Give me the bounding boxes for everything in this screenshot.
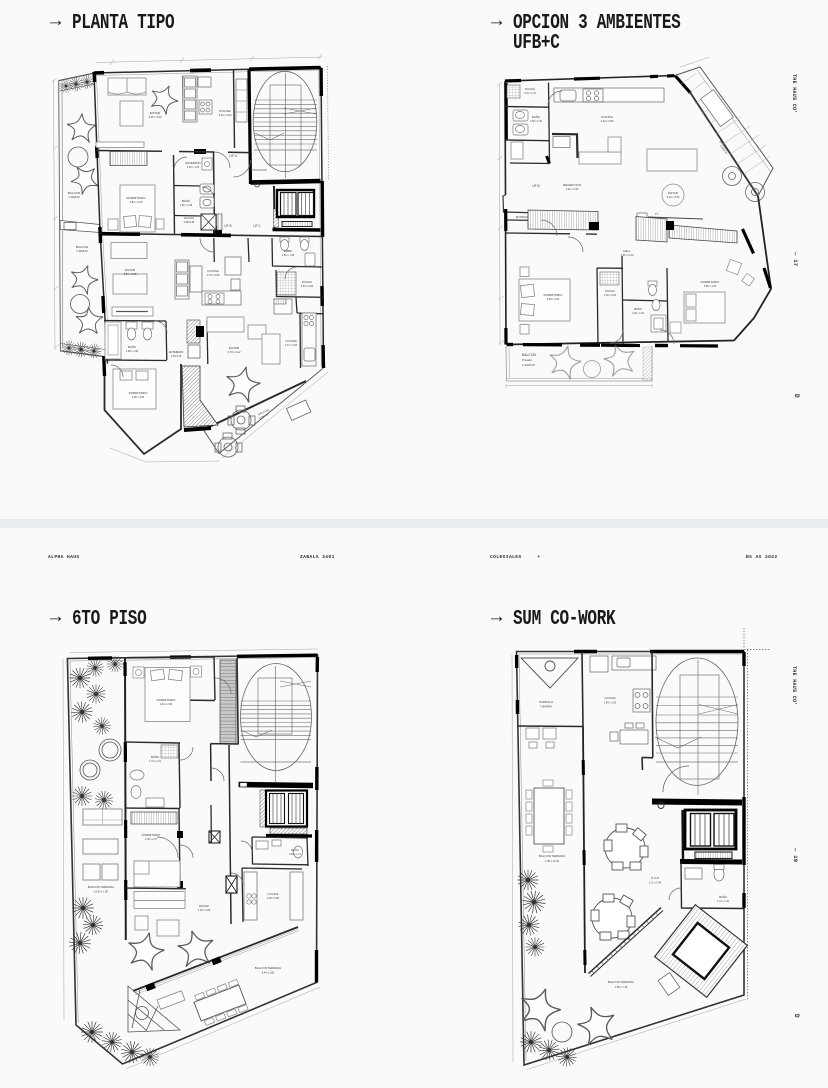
svg-text:DORMITORIO: DORMITORIO bbox=[126, 196, 146, 200]
svg-text:UF B: UF B bbox=[224, 224, 231, 228]
svg-text:1.52 x 1.45: 1.52 x 1.45 bbox=[180, 204, 193, 207]
svg-text:1.73 x 2.80: 1.73 x 2.80 bbox=[207, 273, 220, 277]
svg-text:3.35 x 3.29: 3.35 x 3.29 bbox=[704, 285, 717, 288]
svg-text:BAÑO: BAÑO bbox=[151, 754, 160, 759]
svg-text:1.52 x 1.25: 1.52 x 1.25 bbox=[187, 166, 200, 169]
svg-text:1.85 x 7.18: 1.85 x 7.18 bbox=[615, 986, 628, 989]
svg-text:COCINA: COCINA bbox=[285, 339, 296, 343]
svg-text:1.94 x 3.00: 1.94 x 3.00 bbox=[604, 702, 617, 705]
svg-text:2.05 x 2.88: 2.05 x 2.88 bbox=[267, 897, 279, 900]
svg-text:ESTAR: ESTAR bbox=[150, 111, 161, 115]
svg-text:DORMITORIO: DORMITORIO bbox=[142, 833, 161, 837]
svg-text:2.60 x 3.20: 2.60 x 3.20 bbox=[547, 298, 560, 301]
svg-text:DUCHA: DUCHA bbox=[184, 216, 194, 220]
svg-text:COCINA: COCINA bbox=[207, 269, 219, 273]
svg-text:3.08 x 3.00: 3.08 x 3.00 bbox=[132, 396, 145, 399]
svg-text:DUCHA: DUCHA bbox=[605, 289, 615, 293]
svg-text:4.29 x 3.25: 4.29 x 3.25 bbox=[198, 909, 211, 912]
svg-text:14.30 x 1.85: 14.30 x 1.85 bbox=[94, 891, 108, 894]
svg-text:2.40 x 2.93: 2.40 x 2.93 bbox=[160, 703, 173, 706]
svg-text:UF C: UF C bbox=[253, 224, 261, 228]
svg-text:1.50 x 1.45: 1.50 x 1.45 bbox=[282, 254, 295, 257]
svg-text:1.99 x 1.90: 1.99 x 1.90 bbox=[126, 350, 139, 353]
svg-text:COCINA: COCINA bbox=[601, 115, 613, 119]
svg-text:2.16 x 1.21: 2.16 x 1.21 bbox=[289, 853, 301, 856]
svg-text:ESTAR: ESTAR bbox=[229, 346, 240, 350]
svg-text:3.44 x 4.34: 3.44 x 4.34 bbox=[667, 195, 680, 199]
svg-text:BALCON TERRAZA: BALCON TERRAZA bbox=[608, 980, 634, 984]
svg-text:BALCON TERRAZA: BALCON TERRAZA bbox=[255, 966, 281, 970]
svg-text:1.60 x 1.30: 1.60 x 1.30 bbox=[530, 120, 542, 123]
svg-text:1.53 x 0.90: 1.53 x 0.90 bbox=[301, 285, 314, 288]
svg-text:BAÑO: BAÑO bbox=[532, 114, 541, 119]
svg-text:ESTAR: ESTAR bbox=[199, 904, 208, 908]
svg-text:HALL: HALL bbox=[623, 249, 631, 253]
svg-text:2.80 x 3.20: 2.80 x 3.20 bbox=[130, 200, 143, 204]
svg-text:2.45 x 3.00: 2.45 x 3.00 bbox=[149, 115, 162, 119]
svg-text:DORMITORIO: DORMITORIO bbox=[157, 698, 176, 702]
svg-text:COCINA: COCINA bbox=[219, 109, 232, 113]
svg-text:RECEPCION: RECEPCION bbox=[563, 183, 581, 187]
svg-text:0.70 x 1.70: 0.70 x 1.70 bbox=[524, 92, 536, 95]
svg-text:DUCHA: DUCHA bbox=[302, 280, 312, 284]
svg-text:1.52 x 1.30: 1.52 x 1.30 bbox=[632, 312, 644, 315]
svg-text:DORMITORIO: DORMITORIO bbox=[544, 293, 563, 297]
svg-text:Privado: Privado bbox=[522, 358, 532, 362]
svg-text:ESTAR: ESTAR bbox=[125, 268, 136, 272]
svg-text:2.71 x 5.46: 2.71 x 5.46 bbox=[649, 882, 662, 885]
svg-text:TV: TV bbox=[655, 212, 659, 216]
svg-text:COCINA: COCINA bbox=[604, 696, 615, 700]
svg-text:DORMITORIO: DORMITORIO bbox=[129, 391, 148, 395]
svg-text:Y BARRA: Y BARRA bbox=[540, 705, 553, 709]
svg-text:COCINA: COCINA bbox=[268, 892, 279, 896]
svg-text:UF B: UF B bbox=[532, 184, 539, 188]
svg-text:BALCON: BALCON bbox=[76, 245, 88, 249]
svg-text:3.34 x 3.05: 3.34 x 3.05 bbox=[124, 272, 137, 276]
svg-text:4.46 x 4.00: 4.46 x 4.00 bbox=[219, 113, 232, 117]
svg-text:PARRILLA: PARRILLA bbox=[539, 700, 553, 704]
svg-text:BAÑO: BAÑO bbox=[128, 344, 137, 349]
svg-text:DORMITORIO: DORMITORIO bbox=[701, 280, 720, 284]
svg-text:3.73 x 4.12: 3.73 x 4.12 bbox=[228, 350, 241, 354]
svg-text:S.U.M: S.U.M bbox=[651, 876, 660, 880]
svg-text:1.92 x 2.95: 1.92 x 2.95 bbox=[566, 187, 579, 191]
svg-text:ANTEBAÑO: ANTEBAÑO bbox=[185, 160, 201, 165]
svg-text:1.72 x 2.41: 1.72 x 2.41 bbox=[149, 760, 161, 763]
svg-text:BALCON TERRAZA: BALCON TERRAZA bbox=[539, 854, 565, 858]
svg-text:BALCON TERRAZA: BALCON TERRAZA bbox=[88, 885, 114, 889]
svg-text:ESTAR: ESTAR bbox=[668, 191, 679, 195]
svg-text:1.40x8.00: 1.40x8.00 bbox=[76, 249, 88, 253]
svg-text:AMBO: AMBO bbox=[284, 249, 293, 253]
svg-text:1.79x1.15: 1.79x1.15 bbox=[171, 355, 182, 358]
svg-text:2.42 x 3.86: 2.42 x 3.86 bbox=[601, 119, 614, 123]
svg-text:BALCON: BALCON bbox=[522, 353, 536, 357]
svg-text:DUCHA: DUCHA bbox=[525, 87, 535, 91]
svg-text:1.77 x 3.20: 1.77 x 3.20 bbox=[285, 344, 298, 347]
svg-text:ANTEBAÑO: ANTEBAÑO bbox=[169, 349, 184, 354]
svg-text:BAÑO: BAÑO bbox=[182, 198, 191, 203]
svg-text:BAÑO: BAÑO bbox=[634, 306, 642, 311]
svg-text:0.95x0.95: 0.95x0.95 bbox=[184, 221, 195, 224]
svg-text:1.40x8.00: 1.40x8.00 bbox=[68, 195, 80, 199]
svg-text:1.72 x 1.42: 1.72 x 1.42 bbox=[717, 900, 729, 903]
svg-text:ENTRADA: ENTRADA bbox=[516, 215, 529, 219]
svg-text:1.40x5.09: 1.40x5.09 bbox=[522, 363, 535, 367]
svg-text:1.52 x 0.83: 1.52 x 0.83 bbox=[604, 294, 616, 297]
svg-text:BAÑO: BAÑO bbox=[719, 894, 727, 899]
svg-text:BALCON: BALCON bbox=[68, 191, 80, 195]
svg-text:1.85 x 12.54: 1.85 x 12.54 bbox=[545, 860, 559, 863]
svg-text:1.95 x 2.27: 1.95 x 2.27 bbox=[145, 838, 157, 841]
svg-text:8.44 x 1.85: 8.44 x 1.85 bbox=[262, 972, 275, 975]
svg-text:LIF A: LIF A bbox=[229, 154, 237, 158]
